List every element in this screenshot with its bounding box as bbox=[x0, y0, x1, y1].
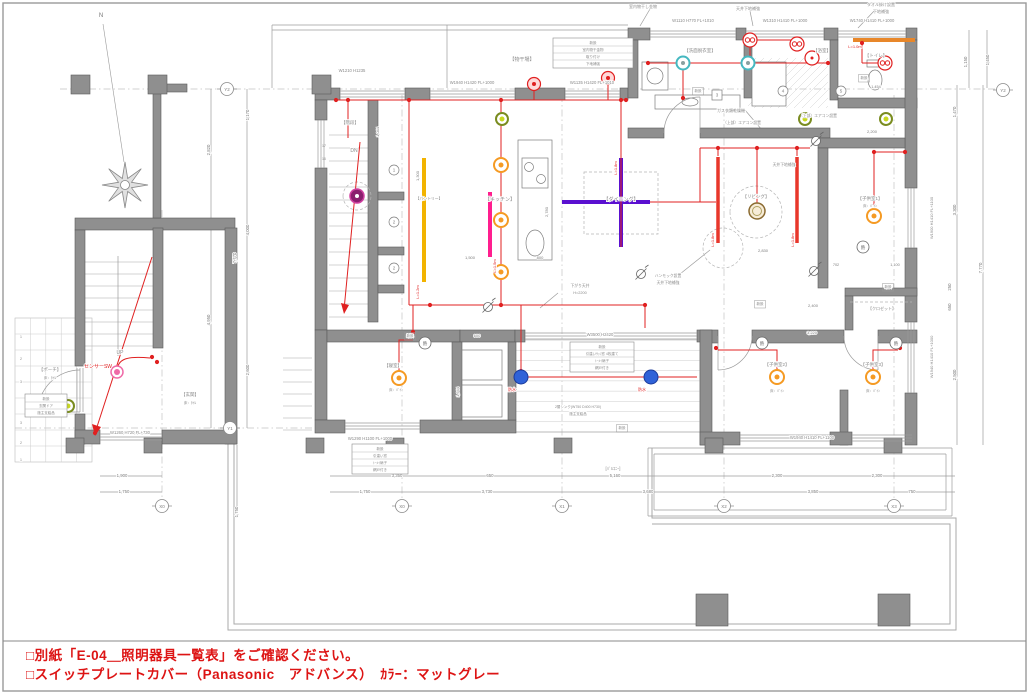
drawing-text: 【クロゼット】 bbox=[868, 305, 896, 311]
drawing-text: 1,044 bbox=[375, 126, 380, 137]
pendant-light-icon bbox=[114, 369, 120, 375]
drawing-text: 新設 bbox=[407, 333, 415, 338]
drawing-text: 新設 bbox=[619, 425, 627, 430]
drawing-text: 新設 bbox=[695, 88, 703, 93]
drawing-text: 取り付け bbox=[586, 54, 600, 59]
drawing-text: 4,950 bbox=[206, 314, 211, 325]
downlight-icon bbox=[871, 375, 876, 380]
drawing-text: 650 bbox=[486, 473, 494, 478]
wall bbox=[818, 138, 905, 148]
drawing-text: 1,450 bbox=[985, 54, 990, 65]
drawing-text: 新設 bbox=[599, 344, 607, 349]
wall bbox=[515, 88, 565, 100]
drawing-text: 1,750 bbox=[119, 489, 130, 494]
drawing-text: 1,300 bbox=[415, 170, 420, 181]
drawing-text: X0 bbox=[159, 504, 165, 509]
wall bbox=[327, 330, 460, 342]
wall bbox=[845, 288, 917, 296]
drawing-text: センサーSW bbox=[84, 364, 112, 370]
drawing-text: 2,780 bbox=[544, 206, 549, 217]
wall bbox=[515, 330, 525, 342]
drawing-text: 新設 bbox=[757, 301, 765, 306]
drawing-text: 施主支給品 bbox=[569, 411, 587, 416]
drawing-text: 3 bbox=[20, 380, 22, 384]
drawing-text: Y2 bbox=[1000, 88, 1006, 93]
drawing-text: 【トイレ】 bbox=[865, 53, 888, 58]
drawing-text: 1 bbox=[20, 335, 22, 339]
drawing-text: 【パントリー】 bbox=[416, 196, 443, 201]
drawing-text: UP bbox=[117, 350, 125, 356]
drawing-text: W1290 H1100 FL+1000 bbox=[348, 436, 393, 441]
drawing-text: 2,600 bbox=[245, 364, 250, 375]
column bbox=[878, 594, 910, 626]
drawing-text: W1940 H1410 FL+1100 bbox=[790, 435, 835, 440]
drawing-text: 【浴室】 bbox=[813, 47, 831, 54]
drawing-text: 熱 bbox=[423, 340, 428, 347]
drawing-text: 熱 bbox=[894, 340, 899, 347]
drawing-text: 【寝室】 bbox=[384, 362, 402, 368]
drawing-text: 【子供室3】 bbox=[860, 361, 885, 368]
drawing-text: 2,830 bbox=[758, 248, 769, 253]
downlight-icon bbox=[397, 376, 402, 381]
drawing-text: W1900 H1410 FL+1100 bbox=[929, 196, 934, 239]
drawing-text: DN bbox=[350, 148, 358, 154]
downlight-icon bbox=[499, 163, 504, 168]
drawing-text: 【リビング】 bbox=[743, 193, 770, 200]
washroom-downlight-icon bbox=[681, 61, 685, 65]
drawing-text: N bbox=[99, 13, 103, 19]
drawing-text: 250 bbox=[947, 283, 952, 291]
drawing-text: W3500 H2420 bbox=[587, 332, 614, 337]
downlight-icon bbox=[499, 270, 504, 275]
note-line-1: □別紙「E-04＿照明器具一覧表」をご確認ください。 bbox=[26, 646, 500, 665]
drawing-text: 2,300 bbox=[772, 473, 783, 478]
drawing-text: 天井下地補強 bbox=[773, 162, 796, 167]
stair-pendant-icon bbox=[355, 194, 359, 198]
drawing-text: 引違い窓 bbox=[373, 453, 387, 458]
drawing-text: 熱 bbox=[760, 340, 765, 347]
drawing-text: ﾄｰﾒｲ硝子 bbox=[595, 358, 610, 363]
wall bbox=[905, 40, 917, 188]
column bbox=[705, 438, 723, 453]
drawing-text: （上部）エアコン設置 bbox=[723, 120, 761, 125]
drawing-text: W1110 H770 FL+1010 bbox=[672, 18, 714, 23]
drawing-text: Y1 bbox=[227, 426, 233, 431]
drawing-text: 熱 bbox=[861, 244, 866, 251]
drawing-text: ハンモック設置 bbox=[655, 273, 682, 278]
drawing-text: 750 bbox=[908, 489, 916, 494]
column bbox=[71, 75, 90, 94]
drawing-text: 2 bbox=[20, 357, 22, 361]
waterproof-outlet-icon bbox=[514, 370, 528, 384]
earth-outlet-icon bbox=[884, 117, 889, 122]
compass-icon: N bbox=[99, 13, 148, 208]
drawing-text: 防水 bbox=[508, 386, 516, 392]
drawing-text: 下地補強 bbox=[586, 61, 600, 66]
drawing-text: 3,220 bbox=[807, 330, 818, 335]
wall bbox=[378, 192, 404, 200]
drawing-text: 3,850 bbox=[808, 489, 819, 494]
drawing-text: 2,200 bbox=[867, 129, 878, 134]
bath-light-icon bbox=[811, 57, 814, 60]
drawing-text: 床：ﾀｲﾙ bbox=[184, 400, 196, 405]
wall bbox=[315, 100, 327, 120]
washroom-downlight-icon bbox=[746, 61, 750, 65]
drawing-text: 2,400 bbox=[808, 303, 819, 308]
drawing-text: 1,644 bbox=[455, 386, 460, 397]
wall bbox=[905, 393, 917, 445]
wall bbox=[378, 285, 404, 293]
drawing-text: 【キッチン】 bbox=[485, 197, 515, 203]
drawing-text: L=1.8m bbox=[613, 161, 618, 175]
column bbox=[884, 438, 902, 453]
drawing-text: X2 bbox=[721, 504, 727, 509]
column bbox=[148, 75, 167, 94]
drawing-text: 2,300 bbox=[872, 473, 883, 478]
drawing-text: 新設 bbox=[377, 446, 385, 451]
drawing-text: ﾄｰﾒｲ硝子 bbox=[373, 460, 388, 465]
drawing-text: 3,300 bbox=[952, 204, 957, 215]
drawing-text: W1940 H1410 FL+1000 bbox=[929, 335, 934, 378]
drawing-text: 1,900 bbox=[117, 473, 128, 478]
drawing-text: 3,730 bbox=[482, 489, 493, 494]
drawing-text: 新設 bbox=[43, 396, 50, 401]
drawing-text: 施主支給品 bbox=[37, 410, 55, 415]
drawing-notes: □別紙「E-04＿照明器具一覧表」をご確認ください。□スイッチプレートカバー（P… bbox=[26, 646, 500, 684]
fitting bbox=[462, 350, 502, 380]
fitting bbox=[522, 158, 548, 188]
drawing-text: 2,820 bbox=[206, 144, 211, 155]
drawing-text: 天井下地補強 bbox=[657, 280, 680, 285]
wall bbox=[75, 230, 85, 366]
drawing-text: 【玄関】 bbox=[181, 391, 199, 398]
drawing-text: 床：ﾊﾟｲﾝ bbox=[770, 388, 784, 393]
drawing-text: L=1.5m bbox=[492, 259, 497, 273]
drawing-text: L=1.0m bbox=[848, 44, 862, 49]
drawing-text: W1135 H1420 FL+1010 bbox=[570, 80, 615, 85]
column bbox=[554, 438, 572, 453]
drawing-text: 1,750 bbox=[360, 489, 371, 494]
column bbox=[306, 438, 324, 453]
drawing-text: 2 bbox=[20, 441, 22, 445]
drawing-text: 7,770 bbox=[978, 262, 983, 273]
drawing-text: W1260 H720 FL+730 bbox=[110, 430, 151, 435]
drawing-text: W1940 H1420 FL+1000 bbox=[450, 80, 495, 85]
drawing-text: 床：ﾊﾟｲﾝ bbox=[389, 387, 403, 392]
drawing-text: Y2 bbox=[224, 87, 230, 92]
wall bbox=[153, 228, 163, 348]
drawing-text: 1,454 bbox=[871, 85, 881, 89]
drawing-text: 引違いｻｯｼ窓 4枚建て bbox=[586, 351, 619, 356]
drawing-text: 2層シンク(W750 D400 H730) bbox=[555, 404, 601, 409]
wall bbox=[315, 420, 345, 433]
drawing-text: W1740 H1410 FL+1000 bbox=[850, 18, 895, 23]
drawing-text: [ﾊﾞﾙｺﾆｰ] bbox=[606, 466, 621, 471]
drawing-text: 【ポーチ】 bbox=[39, 366, 62, 372]
drawing-text: W1310 H1410 FL+1000 bbox=[763, 18, 808, 23]
drawing-text: 1,470 bbox=[952, 106, 957, 117]
drawing-text: X3 bbox=[891, 504, 897, 509]
wall bbox=[905, 248, 917, 322]
drawing-text: 1 bbox=[20, 458, 22, 462]
drawing-text: 【子供室2】 bbox=[764, 361, 789, 368]
drawing-text: 【ダイニング】 bbox=[603, 196, 638, 203]
drawing-text: 4,000 bbox=[245, 224, 250, 235]
wall bbox=[315, 330, 327, 420]
drawing-text: 【階段】 bbox=[341, 119, 359, 126]
drawing-text: 床：ﾊﾟｲﾝ bbox=[866, 388, 880, 393]
drawing-text: 1,750 bbox=[234, 506, 239, 517]
drawing-text: 室内物干金物 bbox=[583, 47, 604, 52]
drawing-text: L=1.8m bbox=[710, 233, 715, 247]
drawing-text: 【洗面脱衣室】 bbox=[684, 47, 716, 54]
drawing-text: W1210 H1235 bbox=[339, 68, 366, 73]
fitting bbox=[752, 62, 786, 106]
wall-light-icon bbox=[532, 82, 536, 86]
downlight-icon bbox=[872, 214, 877, 219]
wall bbox=[460, 330, 515, 342]
column bbox=[312, 75, 331, 94]
drawing-text: 【子供室1】 bbox=[857, 195, 882, 202]
wiring-line bbox=[95, 257, 152, 433]
wall bbox=[315, 168, 327, 330]
drawing-text: 床：ﾀｲﾙ bbox=[44, 375, 56, 380]
drawing-text: 【物干場】 bbox=[509, 56, 534, 63]
drawing-text: 玄関ドア bbox=[39, 403, 53, 408]
wall bbox=[818, 148, 828, 288]
drawing-text: 7,770 bbox=[232, 252, 237, 263]
drawing-text: 新設 bbox=[885, 284, 893, 289]
drawing-text: X0 bbox=[399, 504, 405, 509]
wall bbox=[824, 28, 838, 40]
drawing-text: 1,500 bbox=[465, 255, 476, 260]
drawing-text: 1,170 bbox=[245, 109, 250, 120]
floor-plan-drawing: 4567891011121314151617熱熱熱熱122453【物干場】【洗面… bbox=[0, 0, 1029, 694]
drawing-text: 1,150 bbox=[963, 56, 968, 67]
earth-outlet-icon bbox=[500, 117, 505, 122]
downlight-icon bbox=[775, 375, 780, 380]
drawing-text: （上部）エアコン設置 bbox=[799, 113, 837, 118]
drawing-text: 網戸付き bbox=[595, 365, 609, 370]
drawing-page: 4567891011121314151617熱熱熱熱122453【物干場】【洗面… bbox=[0, 0, 1029, 694]
drawing-text: 800 bbox=[537, 255, 544, 260]
wiring-line bbox=[874, 152, 904, 210]
drawing-text: 防水 bbox=[638, 386, 646, 392]
wall bbox=[700, 330, 712, 445]
drawing-text: 702 bbox=[833, 263, 839, 267]
drawing-text: 新設 bbox=[590, 40, 598, 45]
note-line-2: □スイッチプレートカバー（Panasonic アドバンス） ｶﾗｰ：マットグレー bbox=[26, 665, 500, 684]
drawing-text: X1 bbox=[559, 504, 565, 509]
drawing-text: 3 bbox=[20, 421, 22, 425]
wall bbox=[845, 296, 853, 330]
downlight-icon bbox=[499, 218, 504, 223]
wall bbox=[153, 93, 161, 218]
wall bbox=[420, 420, 516, 433]
drawing-text: 650 bbox=[947, 303, 952, 311]
walls bbox=[66, 28, 917, 626]
drawing-text: 下地補強 bbox=[873, 8, 889, 14]
drawing-text: 床：ﾊﾟｲﾝ bbox=[863, 203, 877, 208]
wall bbox=[452, 342, 462, 420]
drawing-text: 5,160 bbox=[610, 473, 621, 478]
column bbox=[696, 594, 728, 626]
drawing-text: L=1.8m bbox=[790, 233, 795, 247]
wall bbox=[700, 128, 830, 138]
drawing-text: L=1.2m bbox=[415, 285, 420, 299]
wall bbox=[165, 84, 187, 92]
wall bbox=[628, 128, 664, 138]
drawing-text: 天井下地補強 bbox=[736, 5, 760, 11]
drawing-text: 下がり天井 bbox=[571, 283, 590, 288]
drawing-text: タオル掛け設置 bbox=[867, 1, 895, 7]
drawing-text: 3,680 bbox=[643, 489, 654, 494]
drawing-text: 新設 bbox=[861, 75, 869, 80]
drawing-text: ガス衣類乾燥機 bbox=[717, 107, 745, 113]
drawing-text: 600 bbox=[474, 333, 481, 338]
drawing-text: 室内物干し金物 bbox=[629, 3, 657, 9]
column bbox=[66, 438, 84, 453]
drawing-text: H=2200 bbox=[573, 291, 586, 295]
ceiling-light-icon bbox=[749, 203, 765, 219]
waterproof-outlet-icon bbox=[644, 370, 658, 384]
fitting bbox=[462, 385, 502, 417]
wall bbox=[378, 247, 404, 255]
drawing-text: 2,500 bbox=[952, 369, 957, 380]
drawing-text: 1,100 bbox=[890, 263, 900, 267]
drawing-text: 網戸付き bbox=[373, 467, 387, 472]
